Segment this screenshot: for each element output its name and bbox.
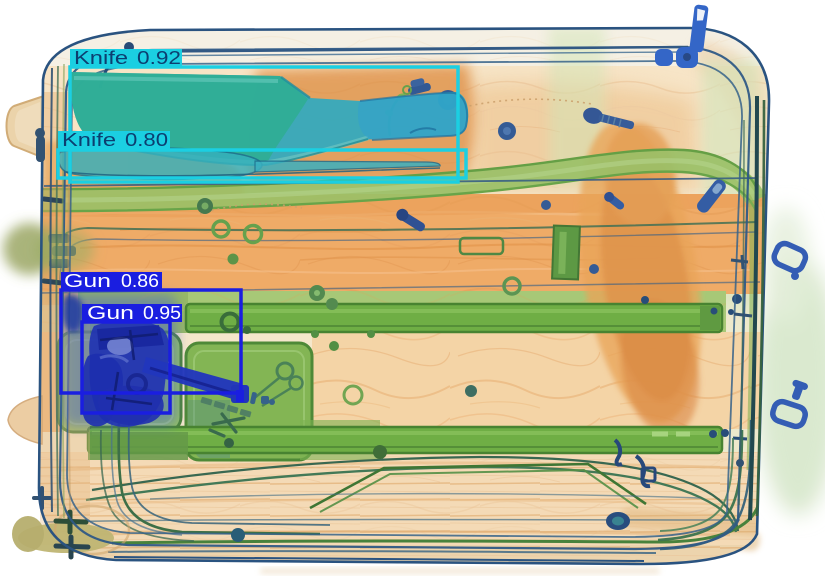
svg-text:0.86: 0.86 <box>121 271 159 291</box>
svg-text:Gun: Gun <box>64 271 111 291</box>
svg-text:Knife: Knife <box>74 48 128 68</box>
svg-text:Gun: Gun <box>87 303 134 323</box>
svg-text:0.80: 0.80 <box>125 130 168 150</box>
svg-text:0.95: 0.95 <box>143 303 181 323</box>
svg-text:Knife: Knife <box>62 130 116 150</box>
svg-text:0.92: 0.92 <box>137 48 181 68</box>
